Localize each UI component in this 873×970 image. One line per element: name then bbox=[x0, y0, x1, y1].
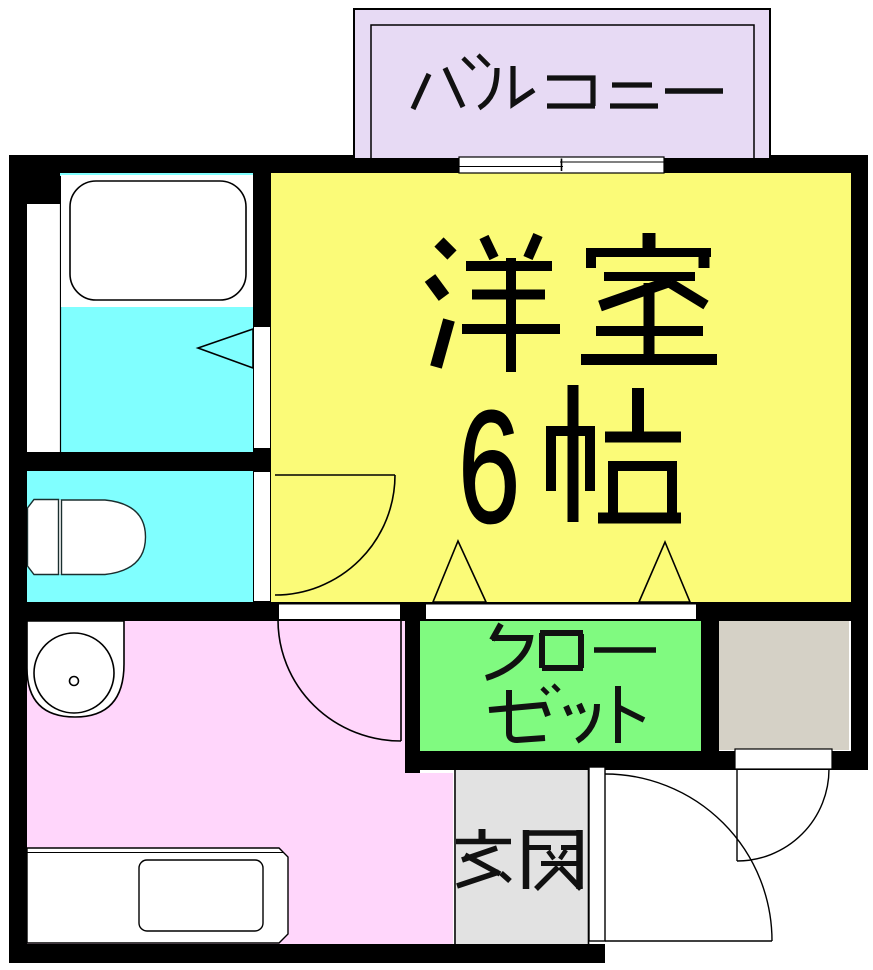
svg-text:6: 6 bbox=[458, 378, 520, 556]
